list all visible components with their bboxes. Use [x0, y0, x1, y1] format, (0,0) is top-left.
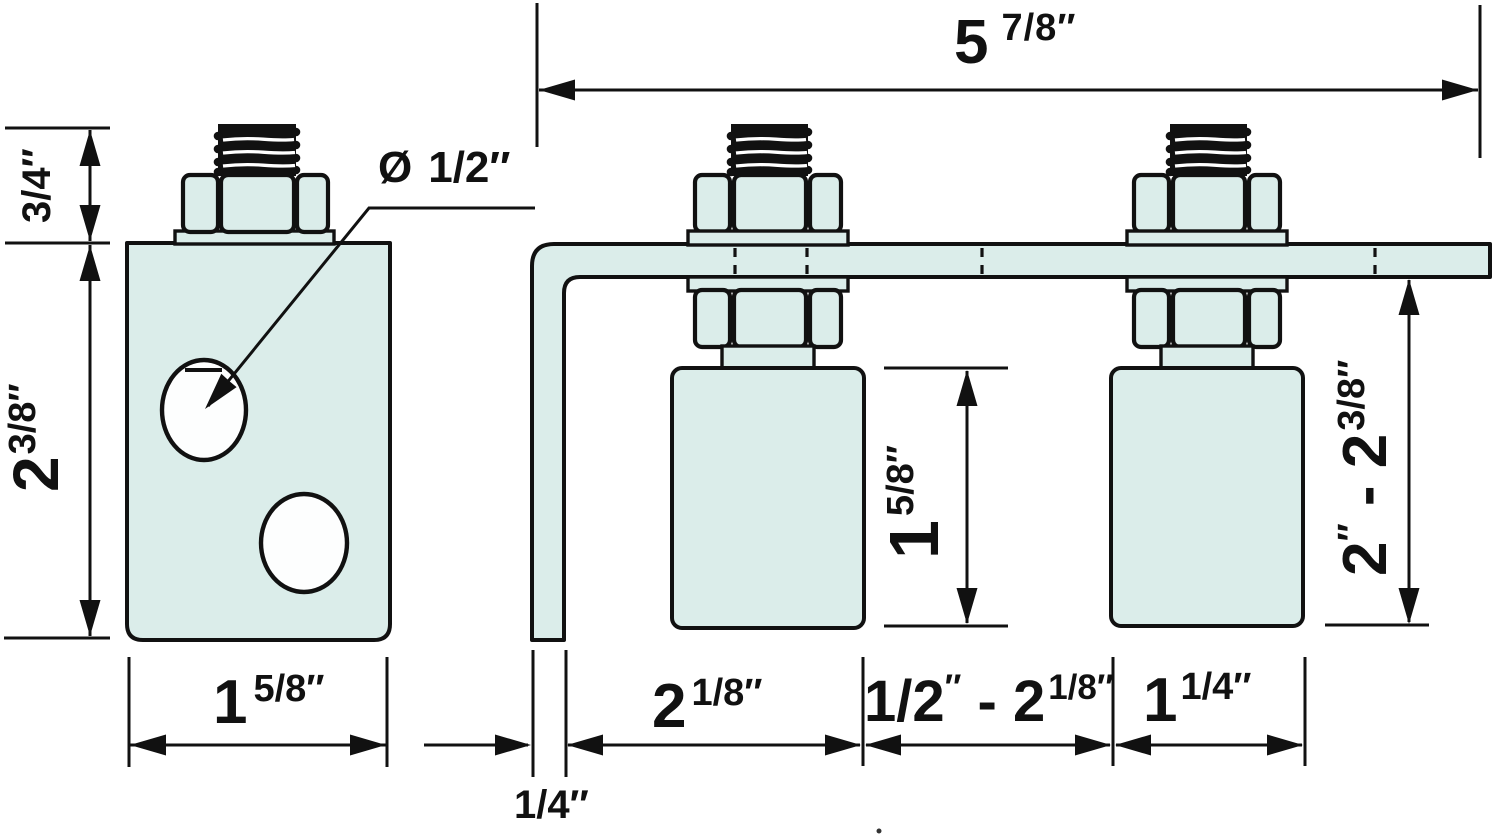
svg-text:1/4″: 1/4″ — [514, 783, 589, 827]
svg-text:3/4″: 3/4″ — [15, 148, 59, 223]
svg-text:Ø1/2″: Ø1/2″ — [378, 143, 510, 192]
